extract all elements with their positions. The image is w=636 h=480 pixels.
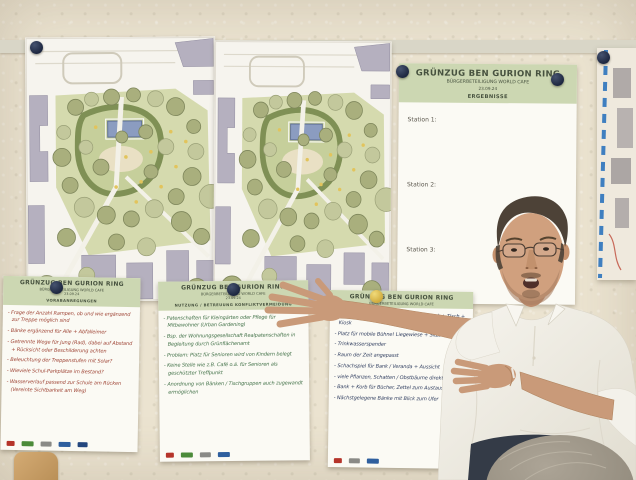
photo-scene: GRÜNZUG BEN GURION RING BÜRGERBETEILIGUN…	[0, 0, 636, 480]
presenter	[0, 0, 636, 480]
chair-corner	[14, 452, 58, 480]
presenter-head	[493, 196, 570, 307]
